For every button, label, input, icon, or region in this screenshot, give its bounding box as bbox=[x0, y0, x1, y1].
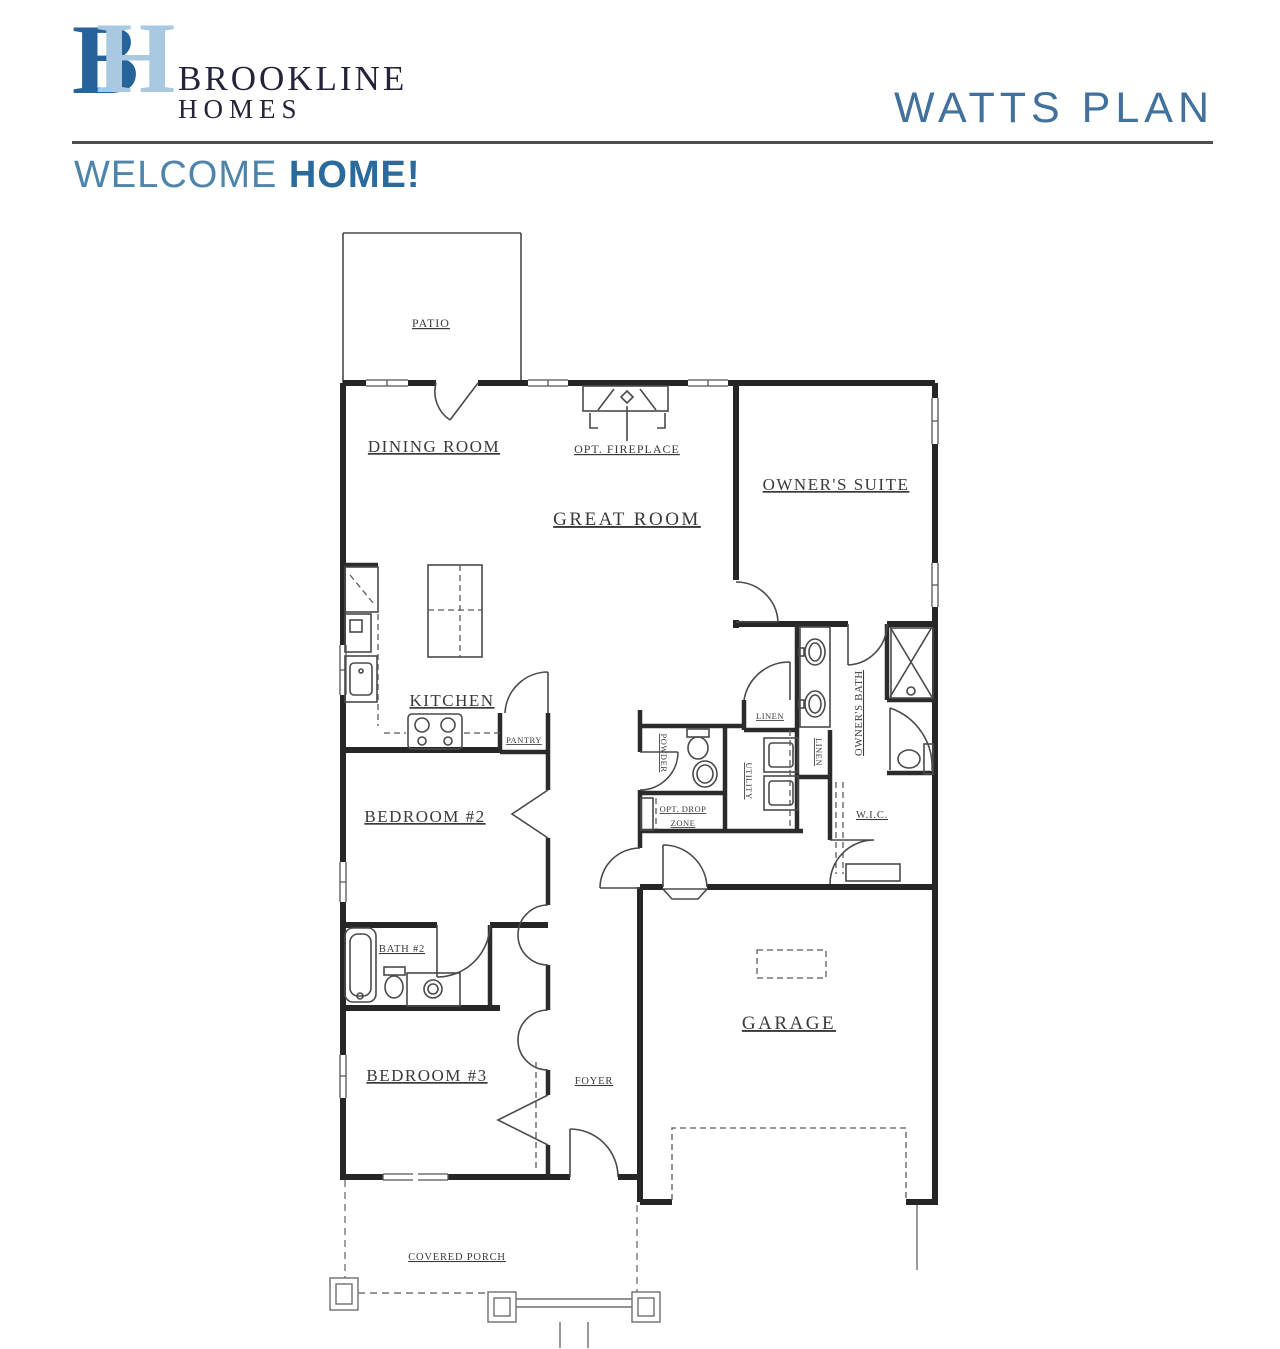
room-label-bath-2: BATH #2 bbox=[379, 944, 425, 955]
flyer-page: B H BROOKLINE HOMES WATTS PLAN WELCOME H… bbox=[0, 0, 1280, 1349]
room-label-great-room: GREAT ROOM bbox=[553, 509, 701, 530]
wic-shelving bbox=[836, 782, 900, 881]
room-label-foyer: FOYER bbox=[575, 1076, 613, 1087]
utility-fixtures bbox=[764, 730, 798, 828]
room-label-utility: UTILITY bbox=[744, 762, 754, 799]
covered-porch-structure bbox=[330, 1180, 660, 1348]
room-label-owners-suite: OWNER'S SUITE bbox=[763, 475, 910, 494]
room-label-linen-hall: LINEN bbox=[814, 738, 824, 766]
room-label-opt-fireplace: OPT. FIREPLACE bbox=[574, 442, 680, 456]
room-label-garage: GARAGE bbox=[742, 1013, 836, 1034]
kitchen-fixtures bbox=[345, 565, 500, 749]
garage-details bbox=[663, 889, 917, 1270]
room-label-opt-drop-zone-1: OPT. DROP bbox=[660, 804, 707, 814]
drop-zone-bench bbox=[641, 798, 656, 830]
room-label-bedroom-3: BEDROOM #3 bbox=[366, 1066, 487, 1085]
room-label-kitchen: KITCHEN bbox=[409, 691, 494, 710]
room-label-linen-bath: LINEN bbox=[756, 711, 784, 721]
room-label-wic: W.I.C. bbox=[856, 810, 888, 821]
fireplace-fixture bbox=[583, 386, 668, 441]
floor-plan: PATIO DINING ROOM OPT. FIREPLACE GREAT R… bbox=[0, 0, 1280, 1349]
patio-outline bbox=[343, 233, 521, 383]
room-label-pantry: PANTRY bbox=[506, 735, 542, 745]
room-label-powder: POWDER bbox=[659, 734, 669, 773]
room-label-owners-bath: OWNER'S BATH bbox=[854, 670, 865, 756]
powder-fixtures bbox=[687, 729, 717, 787]
room-label-dining-room: DINING ROOM bbox=[368, 437, 500, 456]
room-label-patio: PATIO bbox=[412, 316, 450, 330]
room-label-bedroom-2: BEDROOM #2 bbox=[364, 807, 485, 826]
bath2-fixtures bbox=[345, 928, 460, 1006]
room-label-opt-drop-zone-2: ZONE bbox=[671, 818, 696, 828]
door-swings bbox=[435, 383, 932, 1177]
room-label-covered-porch: COVERED PORCH bbox=[408, 1252, 506, 1263]
